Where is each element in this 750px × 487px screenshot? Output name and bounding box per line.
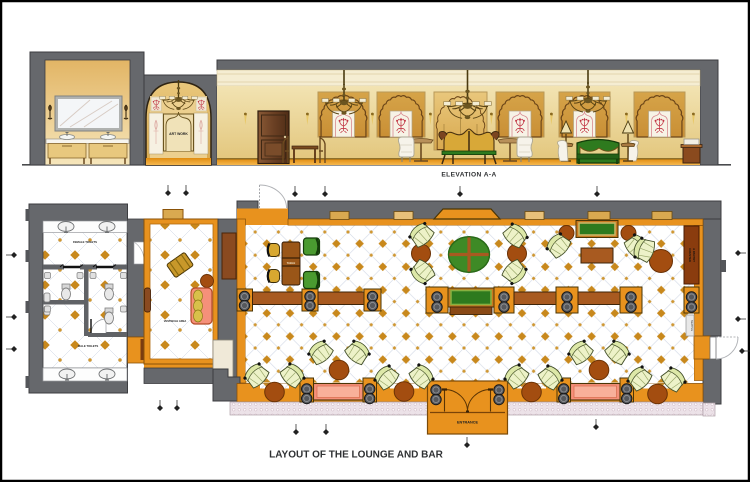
- svg-text:ENTRANCE: ENTRANCE: [457, 421, 479, 425]
- svg-text:MALE TOILETS: MALE TOILETS: [78, 344, 99, 348]
- svg-text:SEATING: SEATING: [690, 320, 694, 331]
- svg-text:VESTIBULE AREA: VESTIBULE AREA: [164, 319, 187, 323]
- svg-text:ART WORK: ART WORK: [169, 132, 188, 136]
- svg-text:ELEVATION A-A: ELEVATION A-A: [441, 172, 496, 179]
- svg-text:TABLE: TABLE: [287, 261, 296, 265]
- svg-text:FEMALE TOILETS: FEMALE TOILETS: [73, 240, 97, 244]
- svg-text:COUNTER: COUNTER: [688, 248, 692, 262]
- svg-text:LAYOUT OF THE LOUNGE AND BAR: LAYOUT OF THE LOUNGE AND BAR: [269, 450, 443, 461]
